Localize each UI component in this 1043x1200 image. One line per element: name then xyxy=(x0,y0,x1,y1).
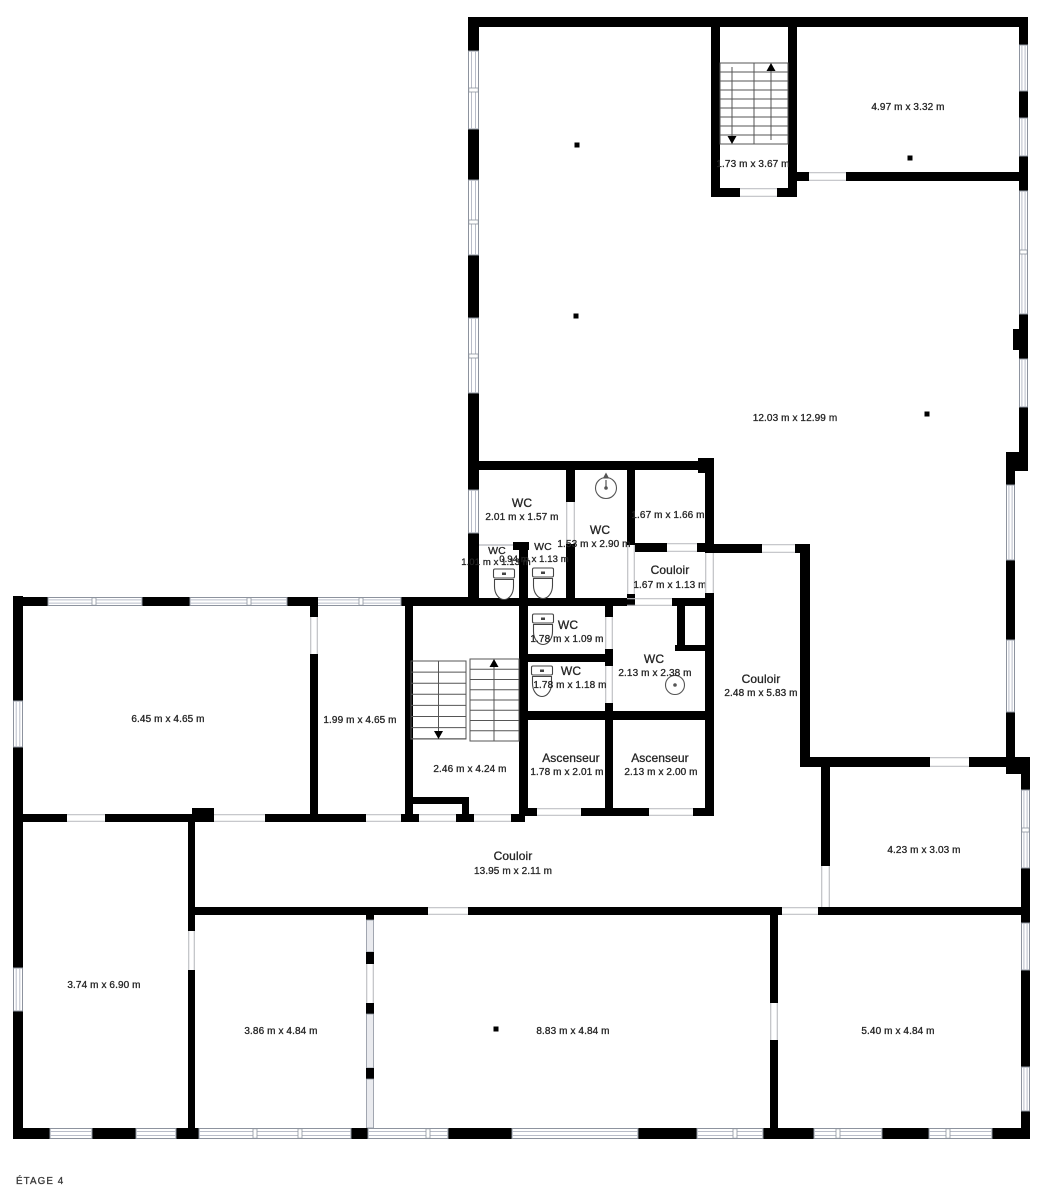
svg-text:2.13 m x 2.00 m: 2.13 m x 2.00 m xyxy=(624,767,697,778)
svg-text:4.97 m x 3.32 m: 4.97 m x 3.32 m xyxy=(871,102,944,113)
svg-text:2.46 m x 4.24 m: 2.46 m x 4.24 m xyxy=(433,764,506,775)
svg-text:1.73 m x 3.67 m: 1.73 m x 3.67 m xyxy=(716,159,789,170)
svg-text:2.48 m x 5.83 m: 2.48 m x 5.83 m xyxy=(724,688,797,699)
svg-text:WC: WC xyxy=(534,541,552,553)
svg-text:3.86 m x 4.84 m: 3.86 m x 4.84 m xyxy=(244,1026,317,1037)
svg-text:2.01 m x 1.57 m: 2.01 m x 1.57 m xyxy=(485,512,558,523)
svg-text:8.83 m x 4.84 m: 8.83 m x 4.84 m xyxy=(536,1026,609,1037)
svg-text:1.78 m x 1.18 m: 1.78 m x 1.18 m xyxy=(533,680,606,691)
svg-text:3.74 m x 6.90 m: 3.74 m x 6.90 m xyxy=(67,980,140,991)
svg-text:WC: WC xyxy=(561,664,581,678)
svg-text:4.23 m x 3.03 m: 4.23 m x 3.03 m xyxy=(887,845,960,856)
svg-text:WC: WC xyxy=(644,652,664,666)
svg-text:Ascenseur: Ascenseur xyxy=(542,751,600,765)
svg-text:6.45 m x 4.65 m: 6.45 m x 4.65 m xyxy=(131,714,204,725)
svg-text:Couloir: Couloir xyxy=(494,849,533,863)
svg-text:1.78 m x 1.09 m: 1.78 m x 1.09 m xyxy=(530,634,603,645)
svg-text:Couloir: Couloir xyxy=(651,563,690,577)
svg-text:12.03 m x 12.99 m: 12.03 m x 12.99 m xyxy=(753,413,838,424)
svg-text:13.95 m x 2.11 m: 13.95 m x 2.11 m xyxy=(474,866,552,877)
svg-text:0.94 m x 1.13 m: 0.94 m x 1.13 m xyxy=(499,554,569,565)
svg-text:1.99 m x 4.65 m: 1.99 m x 4.65 m xyxy=(323,715,396,726)
svg-text:1.67 m x 1.13 m: 1.67 m x 1.13 m xyxy=(633,580,706,591)
svg-text:Couloir: Couloir xyxy=(742,672,781,686)
svg-text:Ascenseur: Ascenseur xyxy=(631,751,689,765)
svg-text:WC: WC xyxy=(558,618,578,632)
svg-text:5.40 m x 4.84 m: 5.40 m x 4.84 m xyxy=(861,1026,934,1037)
svg-text:2.13 m x 2.38 m: 2.13 m x 2.38 m xyxy=(618,668,691,679)
svg-text:WC: WC xyxy=(590,523,610,537)
svg-text:ÉTAGE 4: ÉTAGE 4 xyxy=(16,1176,64,1187)
svg-text:1.67 m x 1.66 m: 1.67 m x 1.66 m xyxy=(631,510,704,521)
svg-text:1.78 m x 2.01 m: 1.78 m x 2.01 m xyxy=(530,767,603,778)
svg-text:WC: WC xyxy=(512,496,532,510)
svg-text:1.53 m x 2.90 m: 1.53 m x 2.90 m xyxy=(557,539,630,550)
